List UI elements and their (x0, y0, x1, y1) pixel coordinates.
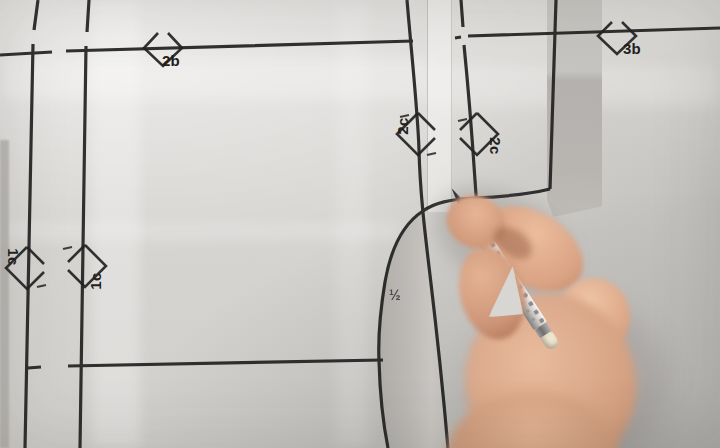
marking-label-2b: 2b (162, 53, 180, 68)
notch-tick (37, 285, 46, 287)
notch-tick (63, 247, 72, 249)
pattern-line-vertical-right (550, 0, 556, 189)
marking-label-1c-left: 1c (6, 248, 21, 265)
marking-label-1c-right: 1c (88, 272, 103, 289)
pattern-line-vertical-left-b (80, 0, 89, 448)
pattern-line-horizontal-right (455, 28, 720, 38)
marking-label-2c-right: 2c (488, 137, 503, 154)
marking-label-half: ½ (389, 288, 401, 302)
marking-label-3b: 3b (623, 41, 641, 56)
pattern-line-horizontal-top (0, 41, 413, 55)
notch-tick (458, 119, 467, 121)
marking-label-2c-left: 2c (395, 117, 410, 134)
notch-tick (427, 153, 436, 155)
sewing-pattern-photo: 2b 3b 1c 1c 2c 2c ½ (0, 0, 720, 448)
pattern-line-vertical-left-a (25, 0, 38, 448)
